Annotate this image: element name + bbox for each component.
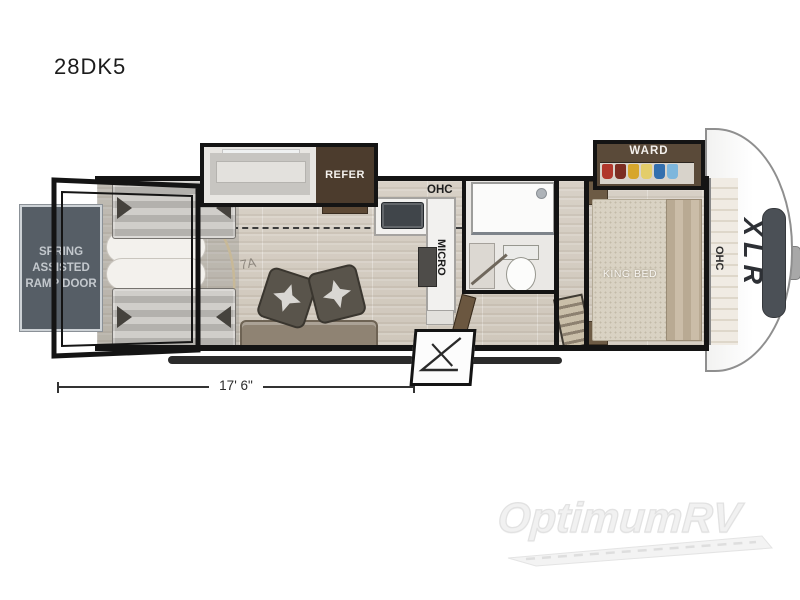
cloth-light-yellow-icon: [641, 164, 652, 179]
brand-logo-xlr: XLR: [737, 218, 768, 290]
seat-star-icon: [316, 273, 357, 314]
microwave-label: MICRO: [435, 239, 447, 276]
refrigerator: REFER: [316, 147, 374, 203]
wardrobe-label: WARD: [597, 145, 701, 157]
floor-mark: 7A: [239, 255, 257, 273]
dimension-label: 17' 6": [209, 378, 263, 393]
open-ramp-door-outline: [46, 170, 206, 360]
dimension-line: 17' 6": [57, 378, 415, 396]
refrigerator-label: REFER: [325, 169, 365, 181]
kitchen-cabinet: [426, 310, 454, 325]
awning-rail-icon: [168, 356, 414, 364]
cloth-red-icon: [602, 164, 613, 179]
bed-pillows: [666, 199, 702, 341]
bedroom-overhead-cabinet-label: OHC: [713, 246, 725, 270]
overhead-cabinet-label: OHC: [427, 184, 453, 196]
seat-star-icon: [266, 277, 309, 320]
cloth-blue-icon: [654, 164, 665, 179]
cloth-light-blue-icon: [667, 164, 678, 179]
dimension-segment: [263, 386, 413, 388]
sink-icon: [381, 202, 424, 229]
cloth-yellow-icon: [628, 164, 639, 179]
watermark-road-icon: [500, 534, 780, 570]
steps-lines-icon: [413, 332, 467, 377]
floorplan-canvas: 28DK5 XLR 7A OHC MICRO: [0, 0, 800, 600]
kitchen-slideout: REFER: [200, 143, 378, 207]
entry-steps-icon: [410, 329, 477, 386]
wardrobe-slideout: WARD: [593, 140, 705, 190]
king-bed-label: KING BED: [593, 268, 667, 280]
model-title: 28DK5: [54, 54, 126, 80]
wall: [584, 180, 589, 348]
wall: [704, 176, 709, 348]
awning-rail-icon: [467, 357, 562, 364]
wall: [554, 180, 559, 348]
wall: [462, 290, 558, 294]
fold-arrow-icon: [216, 306, 231, 328]
cloth-dark-red-icon: [615, 164, 626, 179]
dimension-segment: [59, 386, 209, 388]
wall: [95, 345, 709, 351]
king-bed: KING BED: [592, 199, 668, 341]
shower-head-icon: [536, 188, 547, 199]
hanging-clothes-icon: [600, 162, 694, 184]
toilet-icon: [506, 257, 536, 292]
slide-sofa-cushion: [216, 161, 306, 183]
wall: [462, 180, 466, 292]
